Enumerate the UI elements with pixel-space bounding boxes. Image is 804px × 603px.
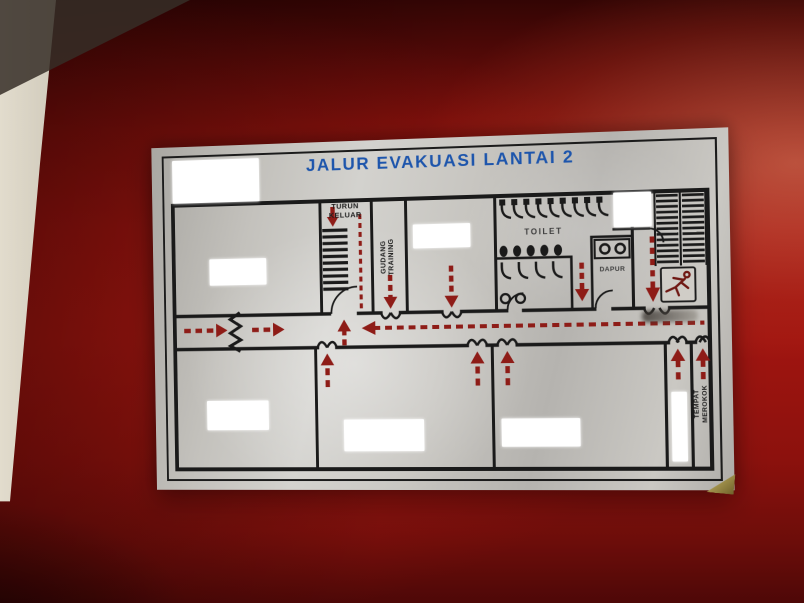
label-gudang-training: GUDANG TRAINING [380,238,397,275]
exit-running-man-icon [661,267,696,302]
redaction-box [344,419,425,451]
label-toilet: TOILET [524,227,562,238]
redaction-box [209,258,266,286]
redaction-box [501,418,580,447]
label-tempat-merokok: TEMPAT MEROKOK [693,385,710,423]
stairs-icon-left [335,229,336,294]
photo-scene: JALUR EVAKUASI LANTAI 2 [0,0,804,603]
evacuation-sign-board: JALUR EVAKUASI LANTAI 2 [151,127,734,490]
stairs-icon-right [654,192,706,266]
redaction-box [413,223,471,248]
redaction-box [613,191,652,227]
redaction-box [172,158,259,204]
toilet-stalls-row [500,197,609,218]
label-dapur: DAPUR [599,266,625,275]
kitchen-sink-icon [594,239,629,258]
redaction-box [671,392,688,462]
label-turun-keluar: TURUN KELUAR [329,201,362,220]
redaction-box [207,400,269,430]
illegible-smudge [642,309,698,322]
